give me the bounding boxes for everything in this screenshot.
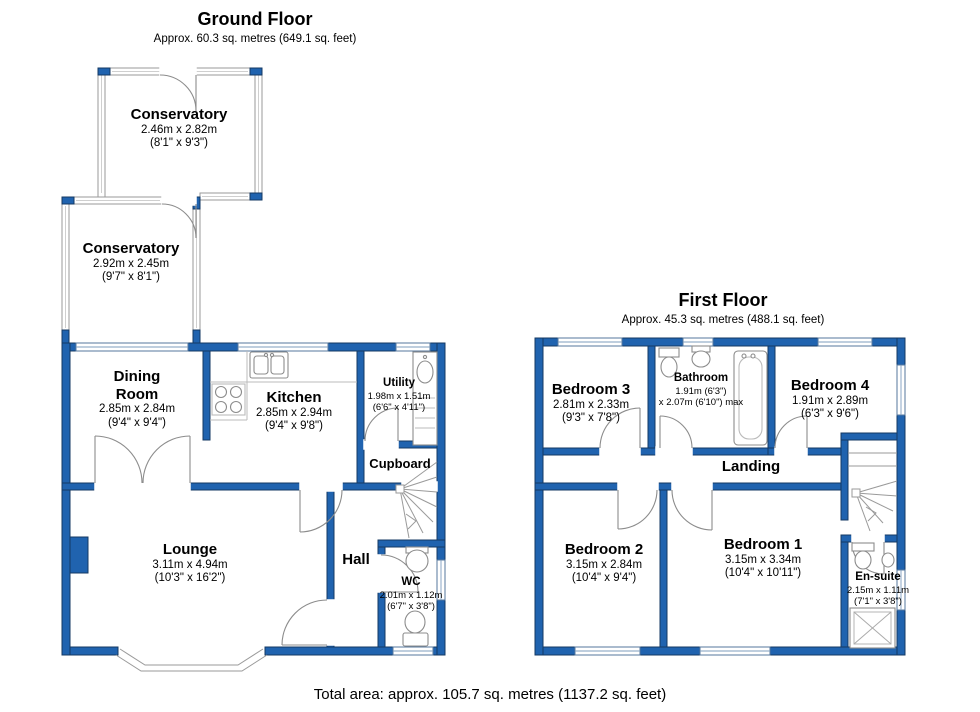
- first-floor-subtitle: Approx. 45.3 sq. metres (488.1 sq. feet): [622, 314, 825, 326]
- first-floor-title-block: First Floor Approx. 45.3 sq. metres (488…: [622, 291, 825, 326]
- room-label-lounge: Lounge 3.11m x 4.94m (10'3" x 16'2"): [152, 541, 227, 586]
- room-name: Dining Room: [95, 368, 179, 403]
- room-dim-metric: 1.91m x 2.89m: [791, 395, 869, 409]
- room-dim-imperial: (10'4" x 10'11"): [724, 567, 802, 581]
- room-label-dining-room: Dining Room 2.85m x 2.84m (9'4" x 9'4"): [95, 368, 179, 431]
- room-dim-imperial: (10'4" x 9'4"): [565, 572, 643, 586]
- room-label-bedroom-1: Bedroom 1 3.15m x 3.34m (10'4" x 10'11"): [724, 536, 802, 581]
- total-area-text: Total area: approx. 105.7 sq. metres (11…: [314, 686, 666, 703]
- room-name: WC: [380, 576, 443, 590]
- ground-floor-title: Ground Floor: [154, 10, 357, 30]
- room-label-bedroom-4: Bedroom 4 1.91m x 2.89m (6'3" x 9'6"): [791, 377, 869, 422]
- room-label-bathroom: Bathroom 1.91m (6'3") x 2.07m (6'10") ma…: [659, 372, 743, 408]
- room-name: Kitchen: [256, 389, 332, 407]
- room-name: Lounge: [152, 541, 227, 559]
- room-dim-imperial: (6'3" x 9'6"): [791, 408, 869, 422]
- room-name: Bedroom 3: [552, 381, 630, 399]
- room-label-conservatory-rear: Conservatory 2.92m x 2.45m (9'7" x 8'1"): [83, 240, 180, 285]
- room-label-cupboard: Cupboard: [369, 456, 430, 471]
- room-dim-metric: 3.15m x 3.34m: [724, 554, 802, 568]
- room-name: Bedroom 4: [791, 377, 869, 395]
- room-dim-metric: 2.81m x 2.33m: [552, 399, 630, 413]
- room-label-conservatory-front: Conservatory 2.46m x 2.82m (8'1" x 9'3"): [131, 106, 228, 151]
- room-dim-imperial: (9'7" x 8'1"): [83, 271, 180, 285]
- ground-floor-subtitle: Approx. 60.3 sq. metres (649.1 sq. feet): [154, 33, 357, 45]
- room-name: Conservatory: [83, 240, 180, 258]
- room-name: Landing: [722, 458, 780, 476]
- room-label-kitchen: Kitchen 2.85m x 2.94m (9'4" x 9'8"): [256, 389, 332, 434]
- room-dim-metric: 2.85m x 2.84m: [95, 403, 179, 417]
- room-dim-imperial: (8'1" x 9'3"): [131, 137, 228, 151]
- room-dim-imperial: (6'6" x 4'11"): [368, 402, 431, 413]
- first-floor-title: First Floor: [622, 291, 825, 311]
- room-dim-imperial: (6'7" x 3'8"): [380, 601, 443, 612]
- room-name: En-suite: [847, 571, 909, 585]
- ground-floor-title-block: Ground Floor Approx. 60.3 sq. metres (64…: [154, 10, 357, 45]
- room-dim-metric: 2.15m x 1.11m: [847, 585, 909, 596]
- room-dim-metric: 3.11m x 4.94m: [152, 559, 227, 573]
- room-label-hall: Hall: [342, 551, 370, 569]
- room-label-bedroom-2: Bedroom 2 3.15m x 2.84m (10'4" x 9'4"): [565, 541, 643, 586]
- room-dim-metric: 2.92m x 2.45m: [83, 258, 180, 272]
- room-label-bedroom-3: Bedroom 3 2.81m x 2.33m (9'3" x 7'8"): [552, 381, 630, 426]
- room-name: Bedroom 2: [565, 541, 643, 559]
- room-dim-imperial: x 2.07m (6'10") max: [659, 397, 743, 408]
- room-dim-metric: 2.85m x 2.94m: [256, 407, 332, 421]
- room-label-landing: Landing: [722, 458, 780, 476]
- room-name: Bathroom: [659, 372, 743, 386]
- room-dim-imperial: (10'3" x 16'2"): [152, 572, 227, 586]
- room-name: Utility: [368, 377, 431, 391]
- room-label-en-suite: En-suite 2.15m x 1.11m (7'1" x 3'8"): [847, 571, 909, 607]
- room-dim-imperial: (9'3" x 7'8"): [552, 412, 630, 426]
- room-label-wc: WC 2.01m x 1.12m (6'7" x 3'8"): [380, 576, 443, 612]
- room-dim-metric: 2.46m x 2.82m: [131, 124, 228, 138]
- room-label-utility: Utility 1.98m x 1.51m (6'6" x 4'11"): [368, 377, 431, 413]
- room-dim-imperial: (9'4" x 9'4"): [95, 417, 179, 431]
- room-name: Cupboard: [369, 456, 430, 471]
- room-dim-imperial: (9'4" x 9'8"): [256, 420, 332, 434]
- room-name: Conservatory: [131, 106, 228, 124]
- room-name: Bedroom 1: [724, 536, 802, 554]
- room-dim-metric: 1.91m (6'3"): [659, 386, 743, 397]
- room-name: Hall: [342, 551, 370, 569]
- room-dim-metric: 1.98m x 1.51m: [368, 391, 431, 402]
- room-dim-metric: 2.01m x 1.12m: [380, 590, 443, 601]
- floorplan-page: Ground Floor Approx. 60.3 sq. metres (64…: [0, 0, 980, 712]
- room-dim-imperial: (7'1" x 3'8"): [847, 596, 909, 607]
- room-dim-metric: 3.15m x 2.84m: [565, 559, 643, 573]
